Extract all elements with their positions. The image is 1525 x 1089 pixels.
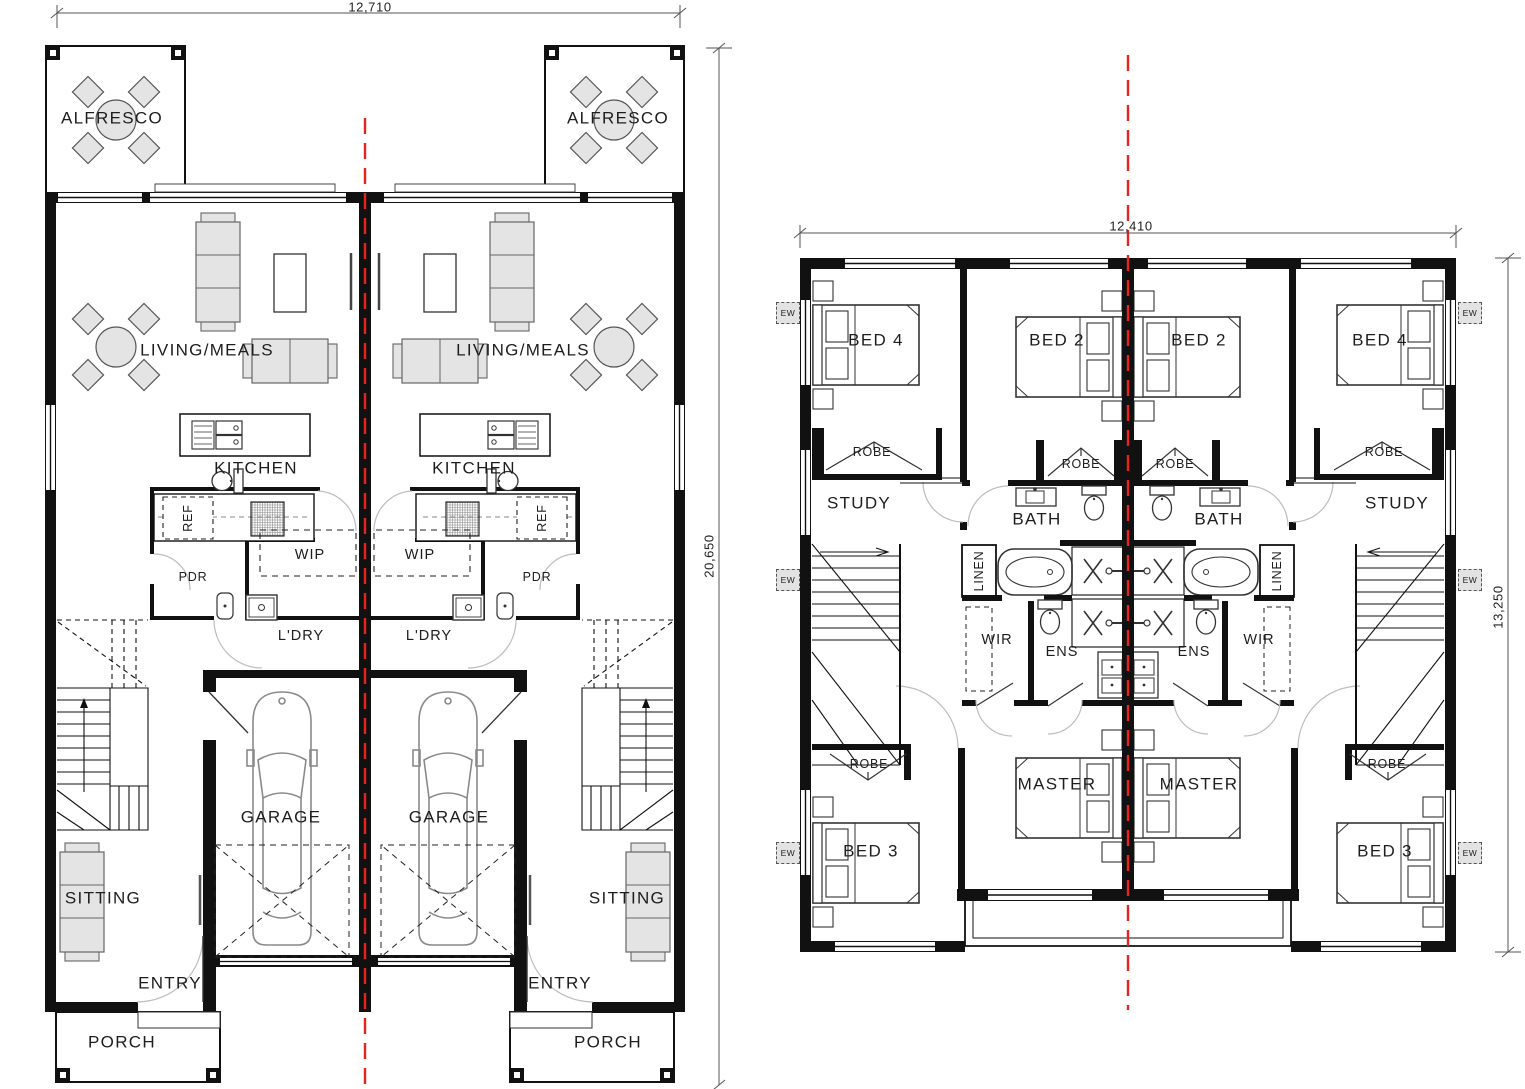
label-linen: LINEN bbox=[1271, 551, 1284, 592]
room-label-bed3: BED 3 bbox=[843, 843, 899, 860]
window-tag-ew: EW bbox=[1458, 842, 1482, 864]
room-label-living-meals: LIVING/MEALS bbox=[456, 342, 590, 359]
room-label-wir: WIR bbox=[1243, 633, 1274, 648]
label-linen: LINEN bbox=[973, 551, 986, 592]
room-label-garage: GARAGE bbox=[409, 809, 490, 826]
room-label-kitchen: KITCHEN bbox=[432, 460, 516, 477]
room-label-ens: ENS bbox=[1046, 645, 1079, 660]
room-label-bed2: BED 2 bbox=[1029, 332, 1085, 349]
window-tag-ew: EW bbox=[1458, 302, 1482, 324]
plan-linework bbox=[0, 0, 1525, 1089]
room-label-study: STUDY bbox=[1365, 495, 1429, 512]
window-tag-ew: EW bbox=[776, 842, 800, 864]
window-tag-ew: EW bbox=[776, 302, 800, 324]
room-label-garage: GARAGE bbox=[241, 809, 322, 826]
room-label-pdr: PDR bbox=[523, 571, 552, 584]
label-robe: ROBE bbox=[850, 758, 889, 771]
window-tag-ew: EW bbox=[1458, 569, 1482, 591]
room-label-alfresco: ALFRESCO bbox=[61, 110, 163, 127]
label-robe: ROBE bbox=[1156, 458, 1195, 471]
label-robe: ROBE bbox=[1368, 758, 1407, 771]
window-tag-ew: EW bbox=[776, 569, 800, 591]
room-label-entry: ENTRY bbox=[138, 975, 202, 992]
room-label-bath: BATH bbox=[1012, 511, 1061, 528]
room-label-bath: BATH bbox=[1194, 511, 1243, 528]
room-label-wir: WIR bbox=[981, 633, 1012, 648]
label-robe: ROBE bbox=[853, 446, 892, 459]
room-label-sitting: SITTING bbox=[65, 890, 141, 907]
room-label-wip: WIP bbox=[295, 548, 325, 563]
ground-floor-sheet bbox=[45, 5, 732, 1089]
label-fridge: REF bbox=[536, 504, 549, 531]
label-robe: ROBE bbox=[1365, 446, 1404, 459]
room-label-ens: ENS bbox=[1178, 645, 1211, 660]
room-label-master: MASTER bbox=[1160, 776, 1239, 793]
room-label-master: MASTER bbox=[1018, 776, 1097, 793]
room-label-pdr: PDR bbox=[179, 571, 208, 584]
dimension-gf-width: 12,710 bbox=[348, 1, 391, 14]
room-label-laundry: L'DRY bbox=[406, 629, 452, 644]
dimension-gf-depth: 20,650 bbox=[703, 534, 716, 577]
label-fridge: REF bbox=[182, 504, 195, 531]
label-robe: ROBE bbox=[1062, 458, 1101, 471]
room-label-wip: WIP bbox=[405, 548, 435, 563]
dimension-ff-depth: 13,250 bbox=[1492, 585, 1505, 628]
room-label-kitchen: KITCHEN bbox=[214, 460, 298, 477]
room-label-entry: ENTRY bbox=[528, 975, 592, 992]
room-label-living-meals: LIVING/MEALS bbox=[140, 342, 274, 359]
floor-plan-drawing: ALFRESCO ALFRESCO LIVING/MEALS LIVING/ME… bbox=[0, 0, 1525, 1089]
room-label-laundry: L'DRY bbox=[278, 629, 324, 644]
dimension-ff-width: 12,410 bbox=[1109, 220, 1152, 233]
room-label-porch: PORCH bbox=[574, 1034, 642, 1051]
room-label-bed3: BED 3 bbox=[1357, 843, 1413, 860]
room-label-bed4: BED 4 bbox=[848, 332, 904, 349]
first-floor-sheet bbox=[794, 55, 1521, 1010]
room-label-bed2: BED 2 bbox=[1171, 332, 1227, 349]
room-label-alfresco: ALFRESCO bbox=[567, 110, 669, 127]
room-label-porch: PORCH bbox=[88, 1034, 156, 1051]
room-label-bed4: BED 4 bbox=[1352, 332, 1408, 349]
room-label-sitting: SITTING bbox=[589, 890, 665, 907]
room-label-study: STUDY bbox=[827, 495, 891, 512]
